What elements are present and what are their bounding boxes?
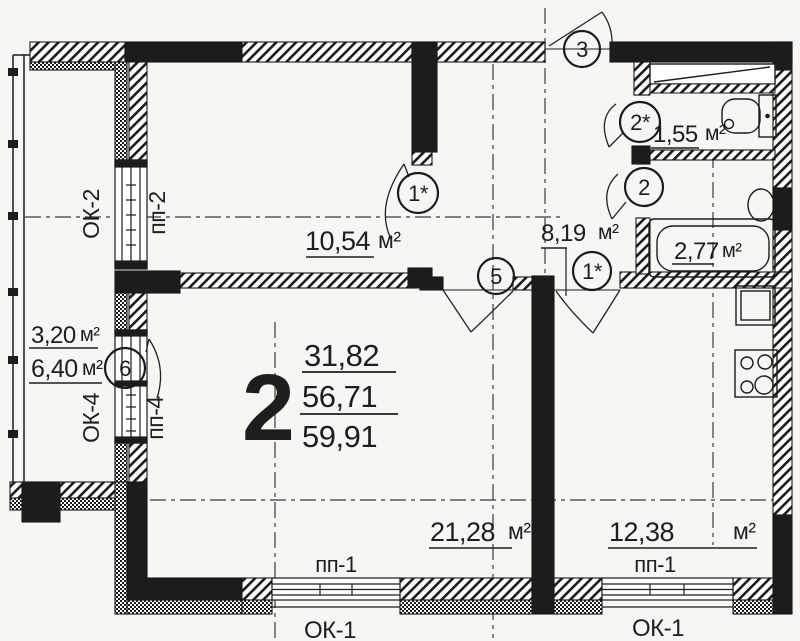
wall-hatched xyxy=(129,443,147,482)
door-mark-bedroom-label: 1* xyxy=(408,181,429,206)
window-ok1-left xyxy=(272,578,400,607)
window-ok2 xyxy=(115,160,147,269)
door-mark-kitchen: 1* xyxy=(573,252,611,290)
total-area: 59,91 xyxy=(302,419,377,454)
wall-black xyxy=(532,276,554,614)
label-pp1-left: пп-1 xyxy=(315,552,357,577)
apartment-area: 56,71 xyxy=(302,379,377,414)
wall-hatched xyxy=(513,277,532,290)
balcony-glazing xyxy=(8,55,30,482)
wall-insulation xyxy=(30,62,125,70)
label-pp2: пп-2 xyxy=(144,191,170,234)
kitchen-door-arc xyxy=(556,291,593,333)
wall-black xyxy=(125,42,242,62)
living-door-arc xyxy=(471,291,513,332)
hallway-area-unit: м² xyxy=(598,221,619,244)
wc-area-unit: м² xyxy=(705,122,726,145)
label-ok1-left: ОК-1 xyxy=(304,617,356,641)
glazing-post xyxy=(8,356,18,364)
wall-hatched xyxy=(437,42,545,62)
balcony-reduced-value: 3,20 xyxy=(31,322,76,349)
glazing-post xyxy=(8,140,18,148)
wall-black xyxy=(632,146,650,164)
wall-black xyxy=(115,271,180,293)
door-marks: 3 2* 2 1* 5 1* 6 xyxy=(105,31,663,388)
sink-icon xyxy=(748,189,774,221)
wall-insulation xyxy=(400,600,532,614)
wall-insulation xyxy=(115,293,127,330)
kitchen-area-label: 12,38 м² xyxy=(608,517,757,548)
living-room-area-label: 21,28 м² xyxy=(429,517,531,548)
wall-hatched xyxy=(30,42,125,62)
wall-black xyxy=(420,277,443,290)
apartment-summary: 2 31,82 56,71 59,91 xyxy=(242,338,398,461)
window-ok1-right xyxy=(602,578,733,607)
balcony-door-flag xyxy=(146,339,161,398)
window-labels: ОК-2 пп-2 ОК-4 пп-4 пп-1 пп-1 ОК-1 ОК-1 xyxy=(78,189,684,641)
door-mark-bedroom: 1* xyxy=(398,173,438,213)
wall-insulation xyxy=(733,600,773,614)
bathroom-area-unit: м² xyxy=(722,240,742,262)
living-room-area-unit: м² xyxy=(508,518,531,544)
label-ok4: ОК-4 xyxy=(78,392,104,442)
hallway-area-value: 8,19 xyxy=(541,220,586,247)
label-pp4: пп-4 xyxy=(142,396,168,440)
glazing-post xyxy=(8,68,18,76)
door-mark-bathroom-label: 2 xyxy=(638,175,650,200)
kitchen-sink-icon xyxy=(736,286,775,325)
wall-black xyxy=(610,42,792,62)
wc-area-label: 1,55 м² xyxy=(651,121,726,148)
wall-hatched xyxy=(400,578,532,600)
wall-hatched xyxy=(733,578,773,600)
bathroom-area-label: 2,77 м² xyxy=(672,238,742,265)
toilet-icon xyxy=(722,95,776,137)
bedroom-area-value: 10,54 xyxy=(305,226,371,256)
kitchen-area-value: 12,38 xyxy=(609,517,674,547)
balcony-area-label: 3,20 м² 6,40 м² xyxy=(29,322,103,383)
bathroom-area-value: 2,77 xyxy=(674,238,719,265)
living-door-leaf xyxy=(443,290,471,332)
wall-black xyxy=(773,42,792,70)
living-room-area-value: 21,28 xyxy=(430,517,495,547)
stove-icon xyxy=(735,350,777,397)
door-mark-wc-label: 2* xyxy=(630,110,651,135)
balcony-full-unit: м² xyxy=(82,357,103,380)
wall-insulation xyxy=(115,482,127,614)
wall-black xyxy=(773,188,792,230)
wall-insulation xyxy=(127,600,242,614)
wall-black xyxy=(412,42,437,152)
glazing-post xyxy=(8,288,18,296)
door-mark-entrance-label: 3 xyxy=(576,37,588,62)
entrance-door-arc xyxy=(602,12,612,46)
wall-hatched xyxy=(242,42,412,62)
door-mark-kitchen-label: 1* xyxy=(582,259,603,284)
wall-black xyxy=(127,482,147,582)
wall-black xyxy=(22,482,60,522)
floor-plan-drawing: 10,54 м² 8,19 м² 1,55 м² 2,77 м² 3,20 м²… xyxy=(0,0,800,641)
kitchen-area-unit: м² xyxy=(733,518,756,544)
vent-shaft xyxy=(650,64,775,93)
door-mark-bathroom: 2 xyxy=(625,168,663,206)
wall-hatched xyxy=(242,578,272,600)
balcony-full-value: 6,40 xyxy=(31,355,78,383)
balcony-reduced-unit: м² xyxy=(80,324,100,346)
wall-black xyxy=(773,515,792,614)
wall-hatched xyxy=(650,150,775,160)
label-ok1-right: ОК-1 xyxy=(632,615,684,641)
living-area-total: 31,82 xyxy=(304,338,379,373)
label-pp1-right: пп-1 xyxy=(634,552,676,577)
glazing-post xyxy=(8,212,18,220)
floor-plan-scan: 10,54 м² 8,19 м² 1,55 м² 2,77 м² 3,20 м²… xyxy=(0,0,800,641)
wall-insulation xyxy=(115,62,127,160)
door-mark-living-room-label: 5 xyxy=(490,264,502,289)
door-mark-living-room: 5 xyxy=(478,258,514,294)
door-mark-balcony-label: 6 xyxy=(119,356,131,381)
wall-insulation xyxy=(242,600,272,614)
bedroom-area-unit: м² xyxy=(378,227,401,253)
wall-hatched xyxy=(636,218,650,274)
wall-hatched xyxy=(129,293,147,330)
wall-hatched xyxy=(554,578,602,600)
room-count: 2 xyxy=(242,355,294,461)
wall-hatched xyxy=(180,273,408,288)
wall-hatched xyxy=(634,62,650,95)
wall-insulation xyxy=(115,443,127,482)
bathroom-door-flag xyxy=(607,174,626,219)
kitchen-door-leaf xyxy=(593,290,620,333)
wall-hatched xyxy=(129,62,147,160)
wall-hatched xyxy=(412,152,432,165)
bedroom-area-label: 10,54 м² xyxy=(305,226,401,257)
label-ok2: ОК-2 xyxy=(78,189,104,239)
wall-insulation xyxy=(554,600,602,614)
glazing-post xyxy=(8,430,18,438)
